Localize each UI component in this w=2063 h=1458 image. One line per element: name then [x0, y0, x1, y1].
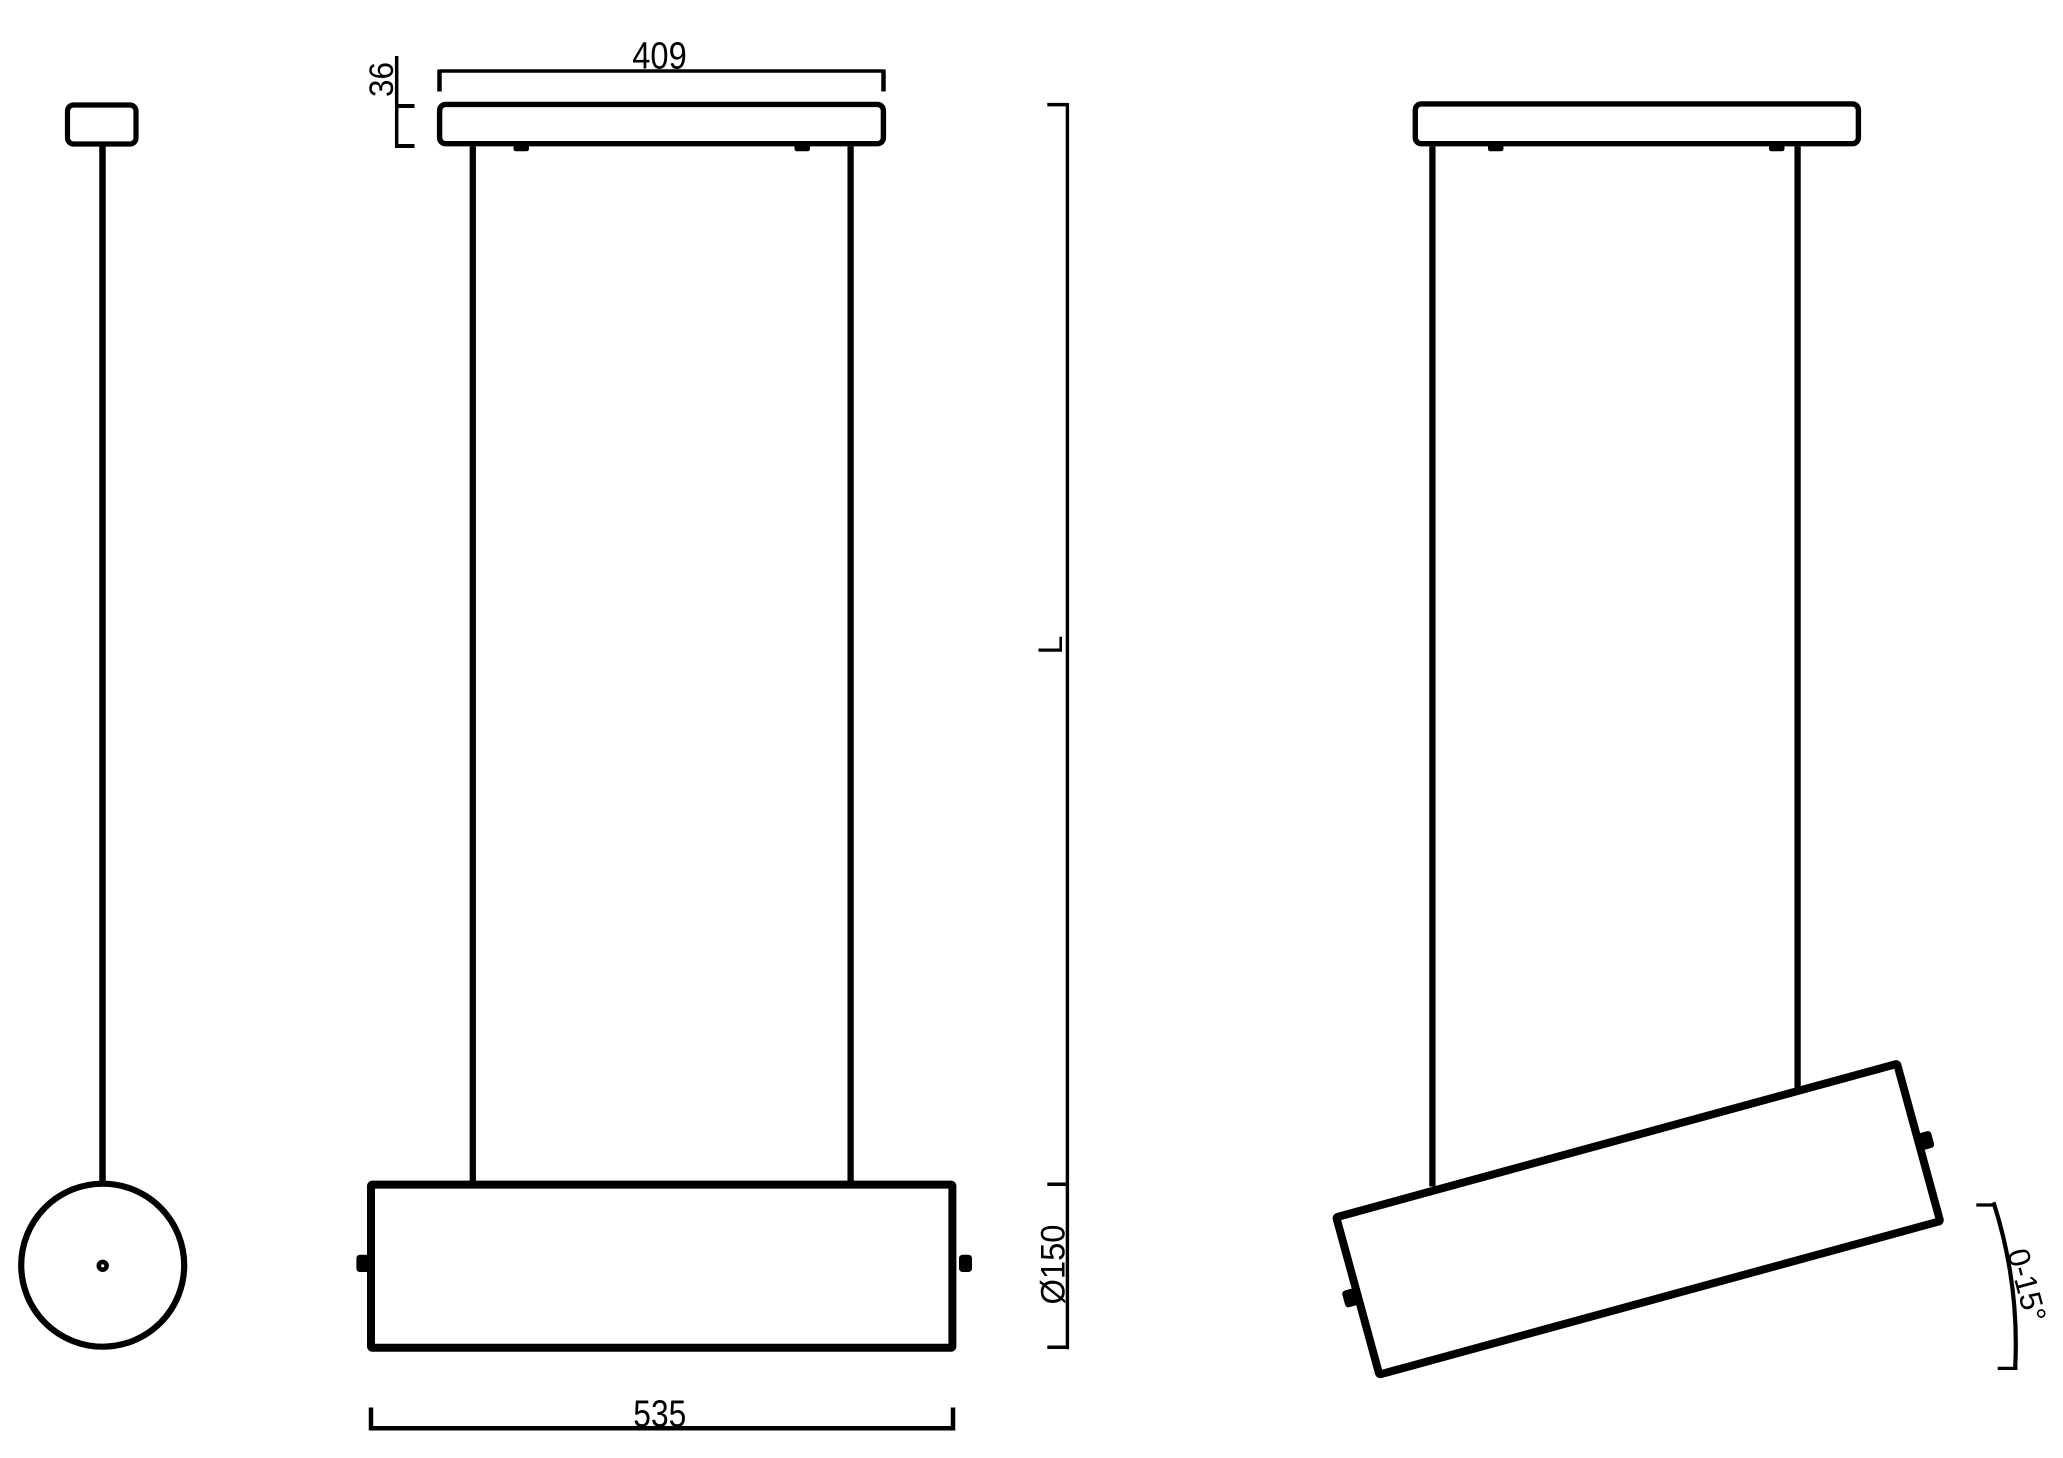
svg-text:535: 535 [633, 1393, 686, 1435]
svg-text:36: 36 [363, 62, 401, 97]
svg-text:L: L [1032, 636, 1070, 655]
svg-text:409: 409 [632, 36, 687, 78]
svg-text:Ø150: Ø150 [1035, 1225, 1073, 1305]
